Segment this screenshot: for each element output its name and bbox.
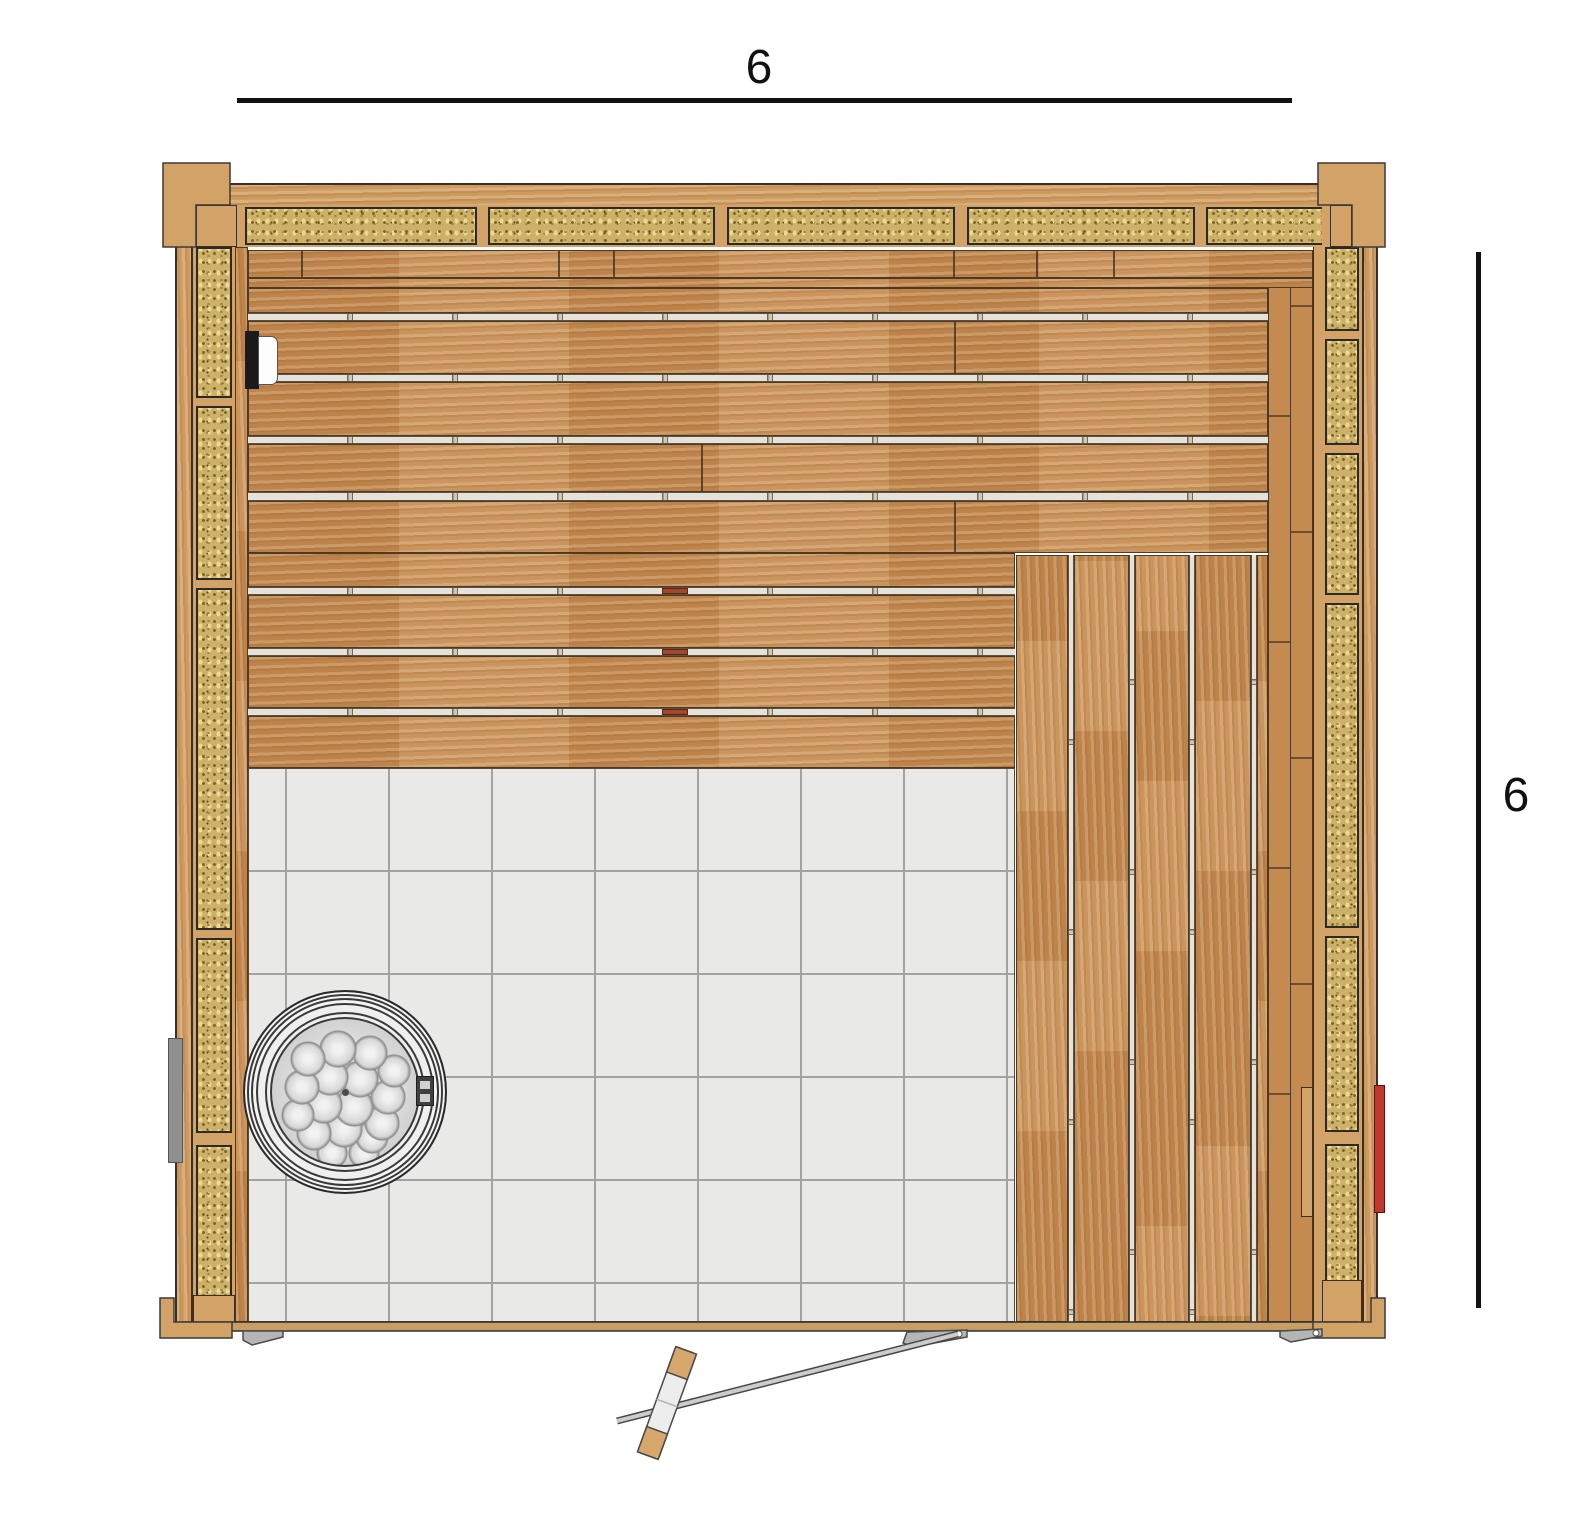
bench-top-rail [248,250,1313,278]
glass-clamp-right [1280,1329,1322,1342]
glass-clamp-middle [903,1330,967,1347]
bench-plank [248,288,1268,313]
right-wall-stud-zone [1313,247,1322,1322]
sauna-floor-plan: 6 6 [0,0,1585,1524]
control-slot [420,1094,430,1102]
insulation-panel [1325,936,1359,1132]
heater-control-box [416,1076,434,1106]
bench-plank [248,553,1015,587]
rail-joint [301,251,303,277]
bench-plank [248,382,1268,436]
handle-wood-cap [667,1347,697,1380]
insulation-panel [1325,603,1359,928]
power-box [168,1038,183,1163]
bench-plank [248,656,1015,708]
bench-plank-gap [248,313,1268,321]
insulation-panel [1325,339,1359,445]
insulation-panel [245,207,477,245]
right-wall-insulation-column [1322,205,1362,1322]
light-fixture [258,336,278,385]
insulation-panel [196,938,232,1133]
insulation-panel [1325,247,1359,331]
insulation-panel [196,588,232,930]
door-frame-block [1301,1087,1313,1217]
heater-center-pin [342,1089,349,1096]
bench-plank [248,444,1268,492]
insulation-panel [488,207,715,245]
right-wall-lining-strip [1268,250,1291,1322]
insulation-panel [196,1145,232,1300]
side-bench-plank [1135,555,1189,1322]
rail-joint [1113,251,1115,277]
plank-joint [701,445,703,491]
plank-joint [954,502,956,552]
plank-butt-joint [662,588,688,594]
rail-joint [613,251,615,277]
right-dimension-label: 6 [1494,772,1538,820]
bench-plank-gap [248,492,1268,501]
top-dimension-line [237,98,1292,103]
bench-plank [248,716,1015,768]
door-handle [638,1347,697,1460]
rail-joint [558,251,560,277]
right-dimension-line [1476,252,1481,1308]
top-dimension-label: 6 [737,44,781,92]
light-fixture-base [245,331,259,389]
insulation-panel [727,207,955,245]
plank-butt-joint [662,649,688,655]
corner-stud [1330,205,1352,247]
side-bench-plank [1195,555,1251,1322]
bench-plank-gap [248,587,1015,595]
insulation-panel [1325,453,1359,595]
insulation-panel [196,247,232,398]
insulation-panel [1325,1144,1359,1285]
bench-plank [248,501,1268,553]
handle-wood-cap [638,1426,668,1459]
bench-plank-gap [248,436,1268,444]
clamp-screw [1313,1330,1319,1336]
plank-butt-joint [662,709,688,715]
bench-plank-gap [248,708,1015,716]
rail-joint [953,251,955,277]
corner-stud [193,1295,235,1325]
red-accent-strip [1374,1085,1385,1213]
insulation-panel [1206,207,1330,245]
left-wall-insulation-column [193,205,235,1322]
door-glass-outline [617,1334,958,1421]
bench-plank [248,321,1268,374]
side-bench-plank [1016,555,1068,1322]
left-wall-outer-board [175,183,193,1338]
door-pivot [956,1331,962,1337]
control-slot [420,1081,430,1089]
bench-plank-gap [248,374,1268,382]
left-wall-inner-lining [235,247,248,1322]
bench-backrest-strip [248,278,1313,288]
top-wall-insulation-row [233,205,1333,247]
corner-stud [196,205,237,247]
corner-stud [1322,1280,1362,1325]
insulation-panel [967,207,1195,245]
door-glass [617,1334,958,1421]
insulation-panel [196,406,232,580]
bench-plank-gap [248,648,1015,656]
side-bench-plank [1257,555,1268,1322]
bench-plank [248,595,1015,648]
glass-front-wall [183,1322,1357,1331]
side-bench-plank [1074,555,1129,1322]
glass-clamp-left [243,1331,283,1345]
plank-joint [954,322,956,373]
rail-joint [1036,251,1038,277]
